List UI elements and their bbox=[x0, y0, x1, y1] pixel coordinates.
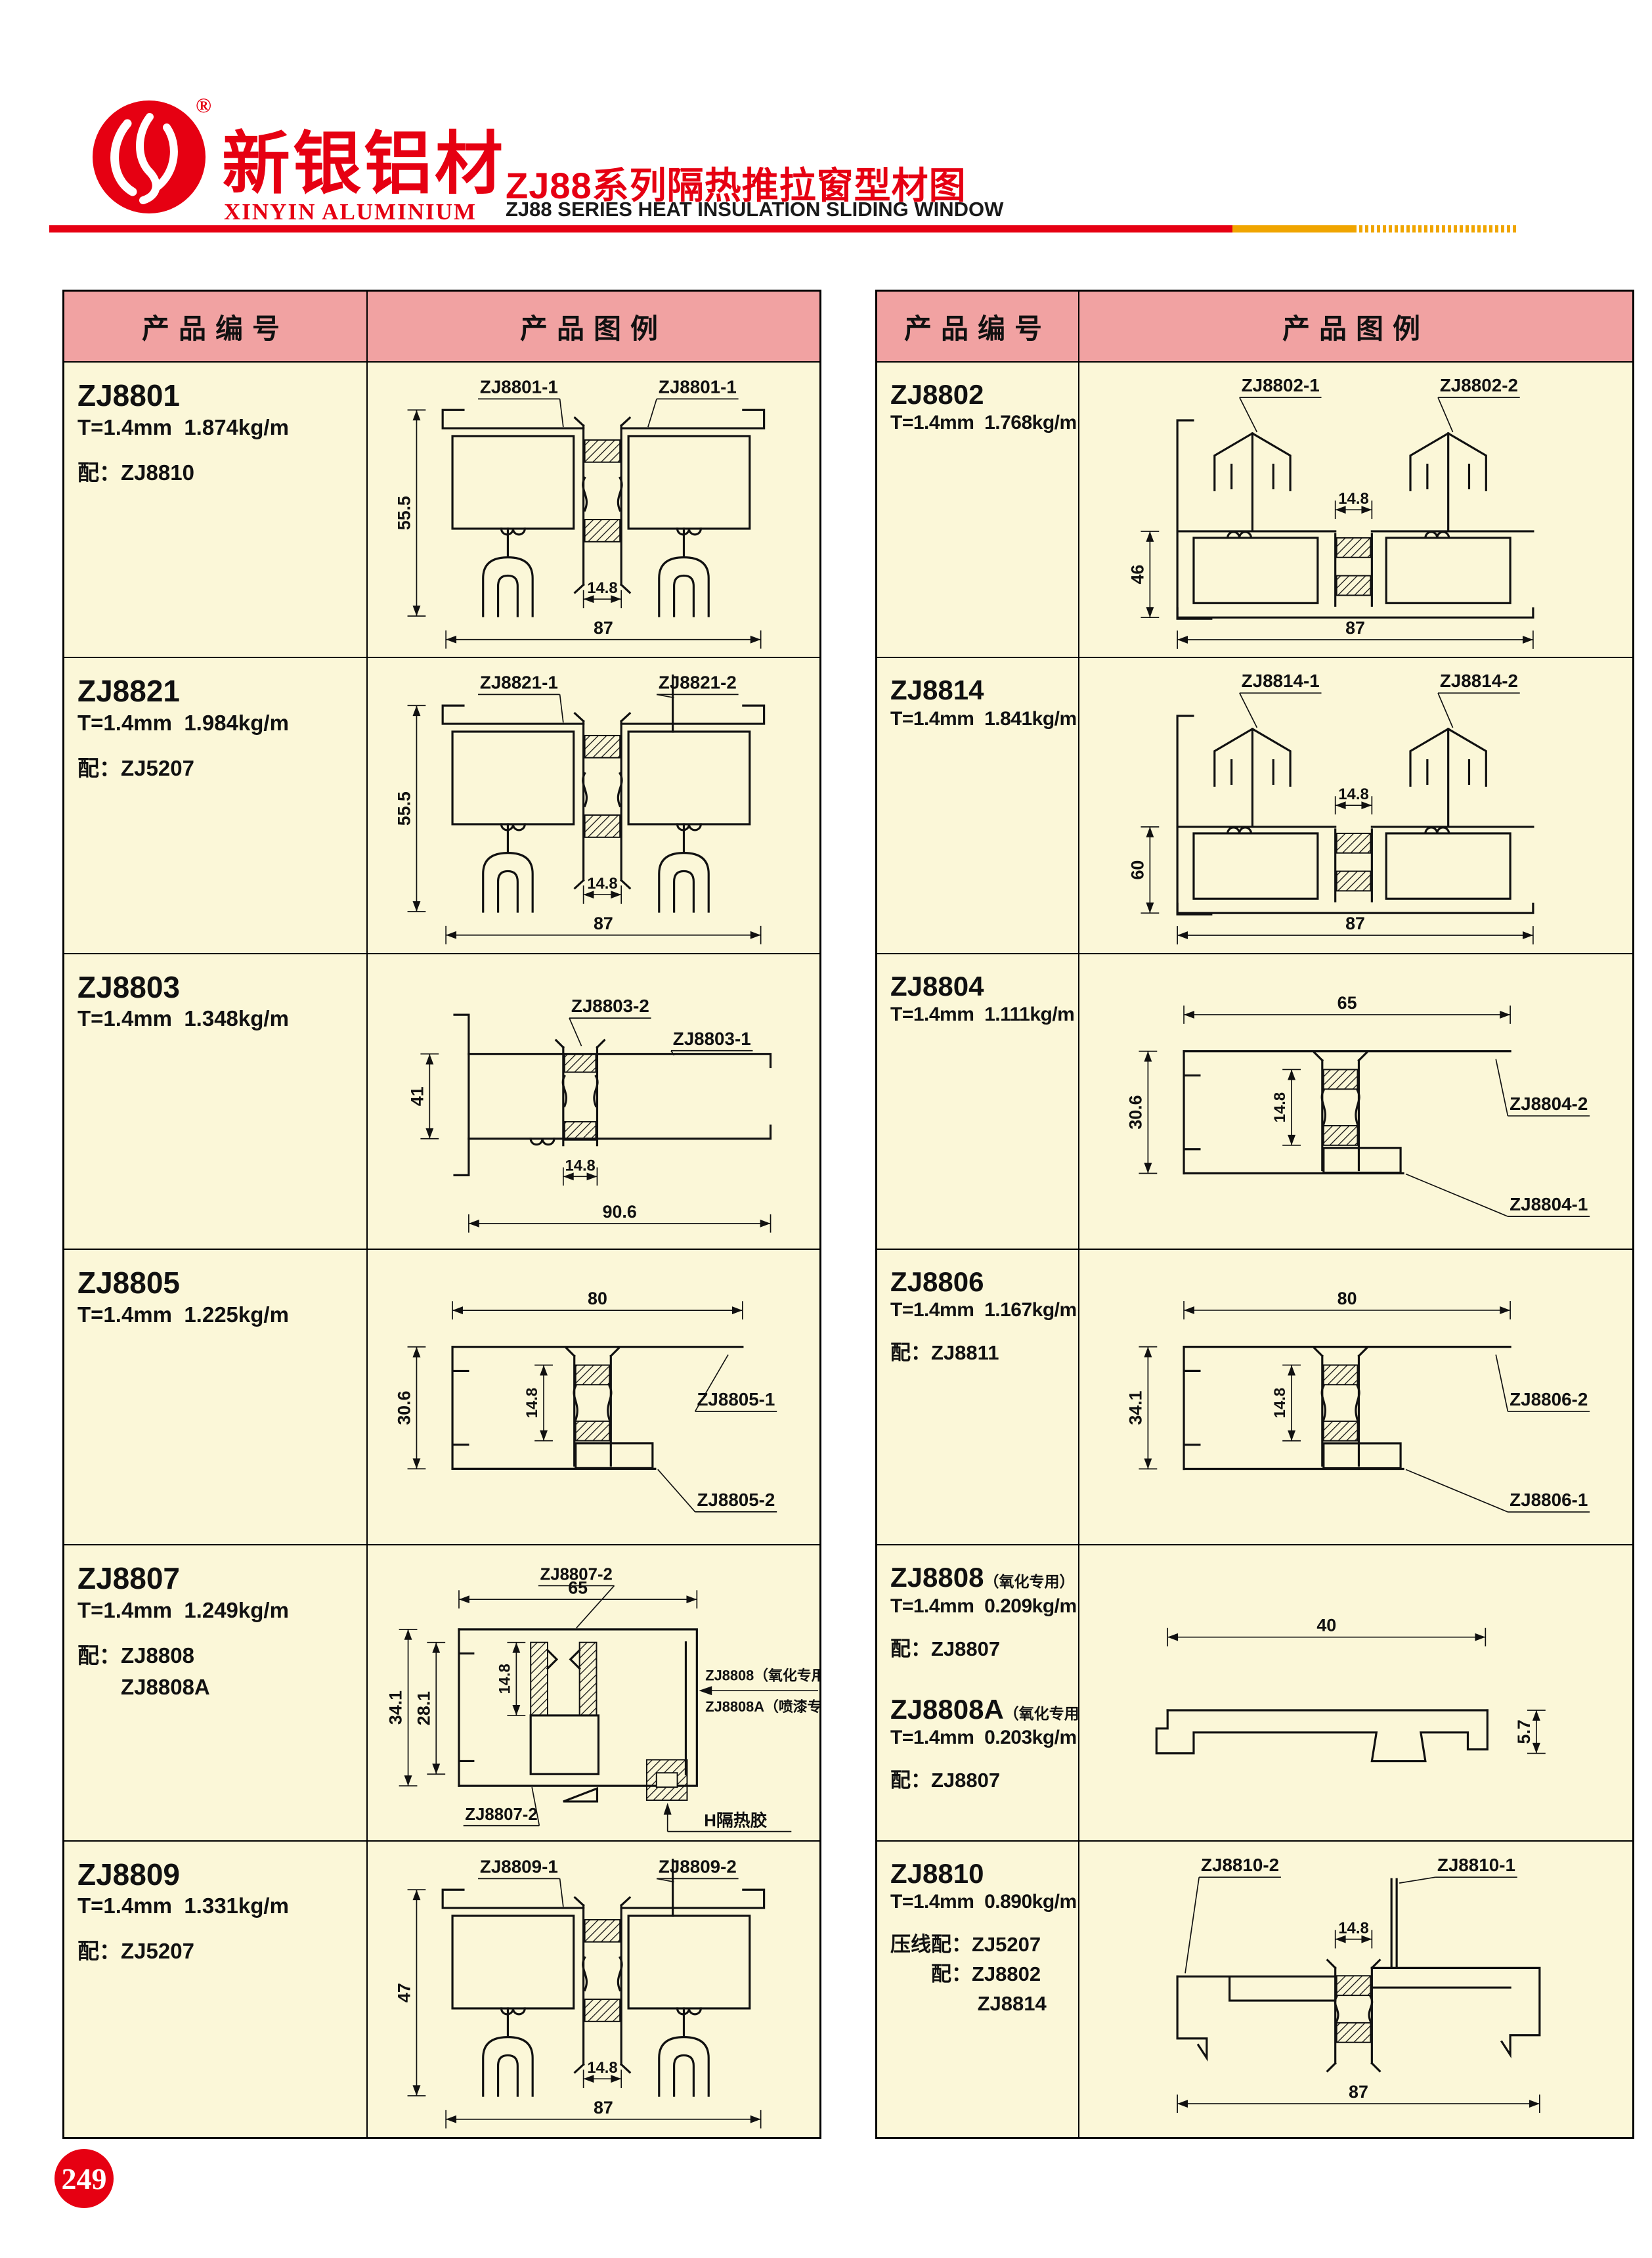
svg-text:ZJ8802-1: ZJ8802-1 bbox=[1242, 375, 1320, 395]
svg-text:87: 87 bbox=[1349, 2082, 1368, 2102]
company-name-cn: 新银铝材 bbox=[222, 129, 506, 200]
product-spec: T=1.4mm 1.874kg/m bbox=[77, 415, 357, 440]
page-number: 249 bbox=[62, 2161, 107, 2196]
svg-text:5.7: 5.7 bbox=[1514, 1719, 1534, 1744]
svg-text:ZJ8804-2: ZJ8804-2 bbox=[1510, 1094, 1588, 1114]
product-row-ZJ8810: ZJ8810T=1.4mm 0.890kg/m压线配：ZJ5207 配：ZJ88… bbox=[877, 1842, 1632, 2137]
svg-text:87: 87 bbox=[594, 2097, 613, 2117]
svg-text:46: 46 bbox=[1127, 565, 1147, 585]
product-row-ZJ8807: ZJ8807T=1.4mm 1.249kg/m配：ZJ8808 ZJ8808A … bbox=[64, 1545, 819, 1841]
svg-text:14.8: 14.8 bbox=[565, 1157, 595, 1174]
match-note-line: 配：ZJ8808 bbox=[77, 1640, 357, 1671]
svg-text:60: 60 bbox=[1127, 860, 1147, 880]
product-match-notes: 配：ZJ5207 bbox=[77, 1936, 357, 1967]
product-entry: ZJ8807T=1.4mm 1.249kg/m配：ZJ8808 ZJ8808A bbox=[77, 1562, 357, 1702]
product-match-notes: 压线配：ZJ5207 配：ZJ8802 ZJ8814 bbox=[890, 1930, 1069, 2019]
svg-text:87: 87 bbox=[1345, 914, 1365, 933]
svg-text:80: 80 bbox=[1337, 1289, 1357, 1308]
svg-text:14.8: 14.8 bbox=[1338, 1919, 1368, 1937]
product-entry: ZJ8806T=1.4mm 1.167kg/m配：ZJ8811 bbox=[890, 1267, 1069, 1368]
product-info-cell: ZJ8804T=1.4mm 1.111kg/m bbox=[877, 954, 1079, 1249]
product-code: ZJ8808A（氧化专用） bbox=[890, 1694, 1069, 1724]
svg-text:ZJ8810-2: ZJ8810-2 bbox=[1201, 1855, 1279, 1875]
header-rule-red bbox=[49, 225, 1232, 232]
svg-text:ZJ8814-2: ZJ8814-2 bbox=[1440, 671, 1518, 692]
product-info-cell: ZJ8814T=1.4mm 1.841kg/m bbox=[877, 658, 1079, 952]
product-code: ZJ8801 bbox=[77, 380, 357, 412]
svg-text:14.8: 14.8 bbox=[1338, 786, 1368, 804]
match-note-line: 配：ZJ5207 bbox=[77, 753, 357, 784]
svg-text:80: 80 bbox=[588, 1289, 607, 1308]
svg-text:14.8: 14.8 bbox=[587, 2059, 617, 2077]
match-note-line: 配：ZJ8807 bbox=[890, 1766, 1069, 1796]
product-info-cell: ZJ8806T=1.4mm 1.167kg/m配：ZJ8811 bbox=[877, 1250, 1079, 1544]
profile-drawing-ZJ8802: 46 14.8 87ZJ8802-1 ZJ8802-2 bbox=[1079, 363, 1632, 657]
svg-text:ZJ8814-1: ZJ8814-1 bbox=[1242, 671, 1320, 692]
product-info-cell: ZJ8809T=1.4mm 1.331kg/m配：ZJ5207 bbox=[64, 1842, 368, 2137]
product-code-suffix: （氧化专用） bbox=[1004, 1705, 1079, 1722]
svg-text:14.8: 14.8 bbox=[1271, 1092, 1289, 1122]
column-header-illustration: 产品图例 bbox=[1079, 292, 1632, 361]
product-code-suffix: （氧化专用） bbox=[984, 1573, 1074, 1590]
svg-text:55.5: 55.5 bbox=[395, 791, 414, 826]
product-spec: T=1.4mm 1.984kg/m bbox=[77, 711, 357, 736]
svg-text:34.1: 34.1 bbox=[1125, 1390, 1145, 1425]
product-code: ZJ8821 bbox=[77, 675, 357, 708]
profile-drawing-cell: 65 34.1 28.1 14.8ZJ8807-2 ZJ8807-2 ZJ880… bbox=[368, 1545, 819, 1840]
profile-drawing-cell: 80 30.6 14.8ZJ8805-1 ZJ8805-2 bbox=[368, 1250, 819, 1544]
svg-text:ZJ8803-1: ZJ8803-1 bbox=[673, 1028, 751, 1048]
svg-text:14.8: 14.8 bbox=[523, 1388, 541, 1418]
product-info-cell: ZJ8807T=1.4mm 1.249kg/m配：ZJ8808 ZJ8808A bbox=[64, 1545, 368, 1840]
svg-text:30.6: 30.6 bbox=[395, 1390, 414, 1425]
product-row-ZJ8801: ZJ8801T=1.4mm 1.874kg/m配：ZJ8810 55.5 14.… bbox=[64, 363, 819, 658]
svg-text:87: 87 bbox=[594, 618, 613, 638]
svg-text:ZJ8809-2: ZJ8809-2 bbox=[659, 1856, 737, 1876]
product-table-left: 产品编号产品图例ZJ8801T=1.4mm 1.874kg/m配：ZJ8810 … bbox=[62, 290, 821, 2139]
product-row-ZJ8808: ZJ8808（氧化专用）T=1.4mm 0.209kg/m配：ZJ8807ZJ8… bbox=[877, 1545, 1632, 1841]
match-note-line: 配：ZJ8807 bbox=[890, 1635, 1069, 1664]
product-match-notes: 配：ZJ8807 bbox=[890, 1635, 1069, 1664]
column-header-code: 产品编号 bbox=[877, 292, 1079, 361]
table-header-row: 产品编号产品图例 bbox=[877, 292, 1632, 363]
product-match-notes: 配：ZJ8808 ZJ8808A bbox=[77, 1640, 357, 1703]
product-entry: ZJ8809T=1.4mm 1.331kg/m配：ZJ5207 bbox=[77, 1859, 357, 1968]
product-spec: T=1.4mm 1.768kg/m bbox=[890, 412, 1069, 434]
svg-text:40: 40 bbox=[1316, 1616, 1336, 1635]
svg-text:ZJ8821-2: ZJ8821-2 bbox=[659, 673, 737, 693]
product-row-ZJ8803: ZJ8803T=1.4mm 1.348kg/m 41 14.8 90.6ZJ88… bbox=[64, 954, 819, 1250]
product-spec: T=1.4mm 1.841kg/m bbox=[890, 708, 1069, 730]
header-rule-yellow bbox=[1232, 225, 1353, 232]
profile-drawing-cell: 55.5 14.8 87ZJ8821-1 ZJ8821-2 bbox=[368, 658, 819, 952]
svg-text:ZJ8801-1: ZJ8801-1 bbox=[480, 376, 558, 397]
profile-drawing-ZJ8810: 14.8 87ZJ8810-2 ZJ8810-1 bbox=[1079, 1842, 1632, 2137]
svg-text:87: 87 bbox=[1345, 618, 1365, 638]
profile-drawing-ZJ8801: 55.5 14.8 87ZJ8801-1 ZJ8801-1 bbox=[368, 363, 819, 657]
svg-text:ZJ8801-1: ZJ8801-1 bbox=[659, 376, 737, 397]
svg-text:55.5: 55.5 bbox=[395, 496, 414, 530]
svg-text:ZJ8806-2: ZJ8806-2 bbox=[1510, 1389, 1588, 1409]
product-entry: ZJ8810T=1.4mm 0.890kg/m压线配：ZJ5207 配：ZJ88… bbox=[890, 1859, 1069, 2019]
profile-drawing-ZJ8814: 60 14.8 87ZJ8814-1 ZJ8814-2 bbox=[1079, 658, 1632, 952]
product-code: ZJ8804 bbox=[890, 971, 1069, 1001]
product-entry: ZJ8803T=1.4mm 1.348kg/m bbox=[77, 971, 357, 1032]
match-note-line: ZJ8814 bbox=[890, 1989, 1069, 2019]
page-number-badge: 249 bbox=[54, 2149, 114, 2208]
product-row-ZJ8806: ZJ8806T=1.4mm 1.167kg/m配：ZJ8811 80 34.1 … bbox=[877, 1250, 1632, 1545]
product-code: ZJ8810 bbox=[890, 1859, 1069, 1888]
svg-text:90.6: 90.6 bbox=[603, 1202, 637, 1222]
product-row-ZJ8805: ZJ8805T=1.4mm 1.225kg/m 80 30.6 14.8ZJ88… bbox=[64, 1250, 819, 1545]
svg-text:14.8: 14.8 bbox=[587, 579, 617, 597]
product-match-notes: 配：ZJ8810 bbox=[77, 457, 357, 489]
product-row-ZJ8804: ZJ8804T=1.4mm 1.111kg/m 65 30.6 14.8ZJ88… bbox=[877, 954, 1632, 1250]
profile-drawing-cell: 41 14.8 90.6ZJ8803-2 ZJ8803-1 bbox=[368, 954, 819, 1249]
match-note-line: 压线配：ZJ5207 bbox=[890, 1930, 1069, 1960]
product-code: ZJ8802 bbox=[890, 380, 1069, 409]
match-note-line: 配：ZJ8802 bbox=[890, 1960, 1069, 1989]
profile-drawing-cell: 80 34.1 14.8ZJ8806-2 ZJ8806-1 bbox=[1079, 1250, 1632, 1544]
product-match-notes: 配：ZJ8811 bbox=[890, 1339, 1069, 1368]
profile-drawing-ZJ8804: 65 30.6 14.8ZJ8804-2 ZJ8804-1 bbox=[1079, 954, 1632, 1249]
svg-text:14.8: 14.8 bbox=[1271, 1388, 1289, 1418]
match-note-line: ZJ8808A bbox=[77, 1671, 357, 1703]
svg-text:ZJ8807-2: ZJ8807-2 bbox=[540, 1566, 612, 1584]
page-title-en: ZJ88 SERIES HEAT INSULATION SLIDING WIND… bbox=[506, 198, 1003, 221]
svg-text:ZJ8808A（喷漆专用）: ZJ8808A（喷漆专用） bbox=[705, 1698, 819, 1715]
product-spec: T=1.4mm 1.249kg/m bbox=[77, 1598, 357, 1623]
product-code: ZJ8807 bbox=[77, 1562, 357, 1595]
svg-text:ZJ8802-2: ZJ8802-2 bbox=[1440, 375, 1518, 395]
product-info-cell: ZJ8808（氧化专用）T=1.4mm 0.209kg/m配：ZJ8807ZJ8… bbox=[877, 1545, 1079, 1840]
svg-text:ZJ8821-1: ZJ8821-1 bbox=[480, 673, 558, 693]
product-code: ZJ8809 bbox=[77, 1859, 357, 1892]
product-entry: ZJ8802T=1.4mm 1.768kg/m bbox=[890, 380, 1069, 434]
svg-text:H隔热胶: H隔热胶 bbox=[704, 1811, 767, 1830]
product-match-notes: 配：ZJ8807 bbox=[890, 1766, 1069, 1796]
product-row-ZJ8802: ZJ8802T=1.4mm 1.768kg/m 46 14.8 87ZJ8802… bbox=[877, 363, 1632, 658]
product-entry: ZJ8814T=1.4mm 1.841kg/m bbox=[890, 675, 1069, 730]
product-spec: T=1.4mm 1.167kg/m bbox=[890, 1299, 1069, 1321]
product-info-cell: ZJ8803T=1.4mm 1.348kg/m bbox=[64, 954, 368, 1249]
product-row-ZJ8809: ZJ8809T=1.4mm 1.331kg/m配：ZJ5207 47 14.8 … bbox=[64, 1842, 819, 2137]
svg-text:ZJ8803-2: ZJ8803-2 bbox=[571, 996, 649, 1016]
column-header-code: 产品编号 bbox=[64, 292, 368, 361]
registered-trademark-mark: ® bbox=[196, 93, 211, 118]
svg-text:ZJ8807-2: ZJ8807-2 bbox=[465, 1805, 537, 1824]
svg-text:28.1: 28.1 bbox=[414, 1691, 433, 1725]
svg-text:ZJ8809-1: ZJ8809-1 bbox=[480, 1856, 558, 1876]
profile-drawing-ZJ8805: 80 30.6 14.8ZJ8805-1 ZJ8805-2 bbox=[368, 1250, 819, 1544]
svg-text:87: 87 bbox=[594, 914, 613, 933]
match-note-line: 配：ZJ5207 bbox=[77, 1936, 357, 1967]
match-note-line: 配：ZJ8810 bbox=[77, 457, 357, 489]
profile-drawing-cell: 14.8 87ZJ8810-2 ZJ8810-1 bbox=[1079, 1842, 1632, 2137]
company-logo bbox=[91, 99, 207, 215]
profile-drawing-ZJ8807: 65 34.1 28.1 14.8ZJ8807-2 ZJ8807-2 ZJ880… bbox=[368, 1545, 819, 1840]
product-info-cell: ZJ8810T=1.4mm 0.890kg/m压线配：ZJ5207 配：ZJ88… bbox=[877, 1842, 1079, 2137]
product-spec: T=1.4mm 0.890kg/m bbox=[890, 1891, 1069, 1913]
profile-drawing-cell: 55.5 14.8 87ZJ8801-1 ZJ8801-1 bbox=[368, 363, 819, 657]
product-entry: ZJ8804T=1.4mm 1.111kg/m bbox=[890, 971, 1069, 1026]
profile-drawing-ZJ8809: 47 14.8 87ZJ8809-1 ZJ8809-2 bbox=[368, 1842, 819, 2137]
product-code: ZJ8806 bbox=[890, 1267, 1069, 1296]
svg-text:14.8: 14.8 bbox=[1338, 490, 1368, 508]
svg-text:65: 65 bbox=[1337, 993, 1357, 1013]
product-spec: T=1.4mm 0.203kg/m bbox=[890, 1727, 1069, 1749]
product-row-ZJ8821: ZJ8821T=1.4mm 1.984kg/m配：ZJ5207 55.5 14.… bbox=[64, 658, 819, 954]
column-header-illustration: 产品图例 bbox=[368, 292, 819, 361]
profile-drawing-cell: 65 30.6 14.8ZJ8804-2 ZJ8804-1 bbox=[1079, 954, 1632, 1249]
svg-text:ZJ8810-1: ZJ8810-1 bbox=[1437, 1855, 1515, 1875]
product-table-right: 产品编号产品图例ZJ8802T=1.4mm 1.768kg/m 46 14.8 … bbox=[875, 290, 1634, 2139]
company-name-en: XINYIN ALUMINIUM bbox=[224, 199, 477, 225]
product-row-ZJ8814: ZJ8814T=1.4mm 1.841kg/m 60 14.8 87ZJ8814… bbox=[877, 658, 1632, 954]
svg-text:ZJ8805-1: ZJ8805-1 bbox=[697, 1389, 775, 1409]
product-entry: ZJ8808A（氧化专用）T=1.4mm 0.203kg/m配：ZJ8807 bbox=[890, 1694, 1069, 1796]
product-code: ZJ8803 bbox=[77, 971, 357, 1004]
svg-text:41: 41 bbox=[407, 1086, 427, 1106]
product-spec: T=1.4mm 1.111kg/m bbox=[890, 1004, 1069, 1026]
svg-text:ZJ8805-2: ZJ8805-2 bbox=[697, 1490, 775, 1510]
profile-drawing-cell: 47 14.8 87ZJ8809-1 ZJ8809-2 bbox=[368, 1842, 819, 2137]
product-info-cell: ZJ8821T=1.4mm 1.984kg/m配：ZJ5207 bbox=[64, 658, 368, 952]
svg-text:ZJ8804-1: ZJ8804-1 bbox=[1510, 1194, 1588, 1214]
svg-text:ZJ8806-1: ZJ8806-1 bbox=[1510, 1490, 1588, 1510]
profile-drawing-cell: 60 14.8 87ZJ8814-1 ZJ8814-2 bbox=[1079, 658, 1632, 952]
product-code: ZJ8805 bbox=[77, 1267, 357, 1300]
product-entry: ZJ8821T=1.4mm 1.984kg/m配：ZJ5207 bbox=[77, 675, 357, 784]
product-spec: T=1.4mm 1.348kg/m bbox=[77, 1006, 357, 1031]
header-rule-striped bbox=[1353, 225, 1517, 232]
product-spec: T=1.4mm 1.225kg/m bbox=[77, 1302, 357, 1327]
match-note-line: 配：ZJ8811 bbox=[890, 1339, 1069, 1368]
svg-text:14.8: 14.8 bbox=[587, 875, 617, 893]
profile-drawing-ZJ8821: 55.5 14.8 87ZJ8821-1 ZJ8821-2 bbox=[368, 658, 819, 952]
product-info-cell: ZJ8802T=1.4mm 1.768kg/m bbox=[877, 363, 1079, 657]
svg-text:14.8: 14.8 bbox=[496, 1664, 513, 1694]
svg-text:34.1: 34.1 bbox=[386, 1691, 406, 1725]
profile-drawing-ZJ8808: 40 5.7 bbox=[1079, 1545, 1632, 1840]
product-match-notes: 配：ZJ5207 bbox=[77, 753, 357, 784]
product-spec: T=1.4mm 1.331kg/m bbox=[77, 1893, 357, 1918]
product-code: ZJ8808（氧化专用） bbox=[890, 1562, 1069, 1592]
product-code: ZJ8814 bbox=[890, 675, 1069, 705]
product-spec: T=1.4mm 0.209kg/m bbox=[890, 1595, 1069, 1618]
profile-drawing-cell: 40 5.7 bbox=[1079, 1545, 1632, 1840]
profile-drawing-ZJ8803: 41 14.8 90.6ZJ8803-2 ZJ8803-1 bbox=[368, 954, 819, 1249]
product-entry: ZJ8808（氧化专用）T=1.4mm 0.209kg/m配：ZJ8807 bbox=[890, 1562, 1069, 1664]
table-header-row: 产品编号产品图例 bbox=[64, 292, 819, 363]
profile-drawing-cell: 46 14.8 87ZJ8802-1 ZJ8802-2 bbox=[1079, 363, 1632, 657]
svg-text:47: 47 bbox=[395, 1983, 414, 2003]
product-entry: ZJ8801T=1.4mm 1.874kg/m配：ZJ8810 bbox=[77, 380, 357, 489]
svg-text:30.6: 30.6 bbox=[1125, 1095, 1145, 1129]
svg-text:ZJ8808（氧化专用）: ZJ8808（氧化专用） bbox=[705, 1668, 819, 1684]
product-info-cell: ZJ8801T=1.4mm 1.874kg/m配：ZJ8810 bbox=[64, 363, 368, 657]
profile-drawing-ZJ8806: 80 34.1 14.8ZJ8806-2 ZJ8806-1 bbox=[1079, 1250, 1632, 1544]
catalog-page: ® 新银铝材 XINYIN ALUMINIUM ZJ88系列隔热推拉窗型材图 Z… bbox=[0, 0, 1652, 2258]
product-entry: ZJ8805T=1.4mm 1.225kg/m bbox=[77, 1267, 357, 1327]
product-info-cell: ZJ8805T=1.4mm 1.225kg/m bbox=[64, 1250, 368, 1544]
